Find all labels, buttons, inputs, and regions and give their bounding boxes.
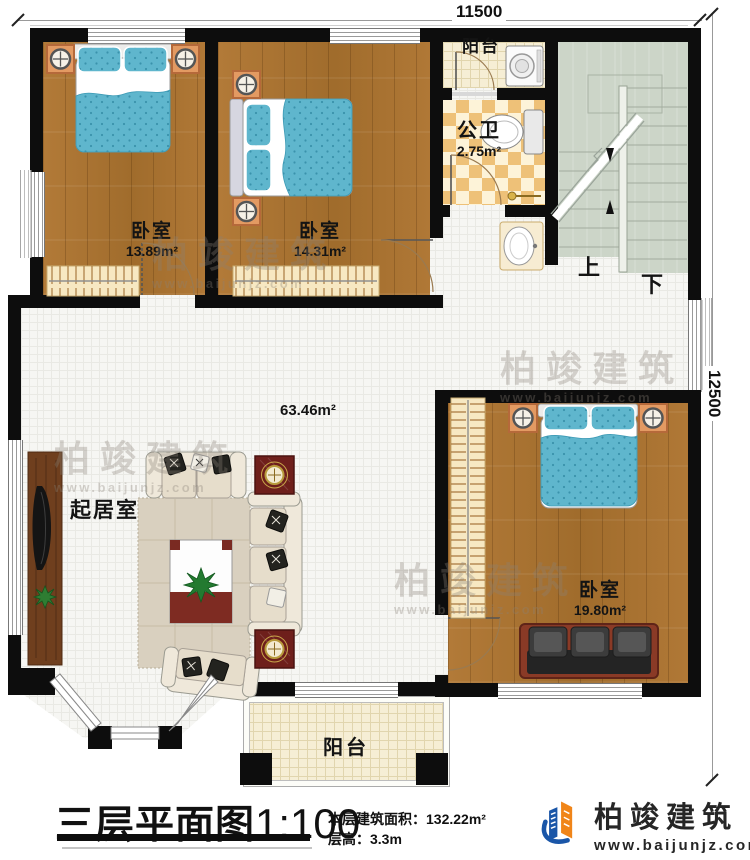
wall [398,682,448,696]
logo-url: www.baijunjz.com [594,837,750,854]
drawing-title: 三层平面图1:100 [55,794,360,850]
window [498,683,642,699]
balcony-pillar [240,753,272,785]
living-tile-floor-edge [21,308,43,683]
stair-floor-right [620,42,688,273]
wall [8,295,140,308]
wall [195,295,443,308]
room-name: 卧室 [131,221,173,242]
wall [433,88,452,100]
room-name: 公卫 [457,120,501,142]
title-underline-thin [62,847,312,849]
floor-area-label: 本层建筑面积： [328,811,426,827]
bay-pillar [158,726,182,749]
floor-info: 本层建筑面积：132.22m² 层高：3.3m [328,809,486,850]
wall [688,390,701,697]
top-dimension-line [18,20,702,21]
top-dimension-value: 11500 [452,2,506,22]
bay-pillar [8,668,55,695]
floor-height-label: 层高： [328,831,370,847]
wall [545,28,558,265]
room-name: 卧室 [579,580,621,601]
wall [8,308,21,440]
window [88,28,185,44]
window [8,440,23,635]
room-area: 14.31m² [276,243,364,259]
window-sill [20,170,32,258]
wall [205,42,218,295]
room-area: 2.75m² [440,143,518,159]
room-name: 卧室 [299,221,341,242]
bay-pillar [88,726,112,749]
wall [30,42,43,172]
wall [433,205,450,217]
floor-height-value: 3.3m [370,831,402,847]
wall [185,28,330,42]
bathroom-label: 公卫 2.75m² [440,120,518,159]
stairs-down-label: 下 [641,272,663,297]
wall [642,683,701,697]
bedroom2-label: 卧室 14.31m² [276,221,364,259]
bay-pillar [205,670,250,696]
floor-plan-canvas: 卧室 13.89m² 卧室 14.31m² 卧室 19.80m² 公卫 2.75… [0,0,750,860]
living-room-label: 起居室 [70,499,139,523]
balcony-bottom-label: 阳台 [310,737,382,760]
wall [505,205,545,217]
living-room-area: 63.46m² [280,402,336,419]
wall [435,390,701,403]
bedroom3-floor [448,403,688,683]
wall [435,403,448,615]
window [330,28,420,44]
title-underline [57,834,310,841]
room-area: 19.80m² [556,602,644,618]
logo-name: 柏竣建筑 [594,794,750,836]
floor-area-line: 本层建筑面积：132.22m² [328,809,486,829]
floor-height-line: 层高：3.3m [328,829,486,849]
wall [30,28,88,42]
floor-area-value: 132.22m² [426,811,486,827]
bedroom1-label: 卧室 13.89m² [108,221,196,259]
stairs-up-label: 上 [578,255,600,280]
company-logo: 柏竣建筑 www.baijunjz.com [538,794,750,854]
right-dimension-value: 12500 [704,366,724,421]
wall [688,42,701,300]
logo-text: 柏竣建筑 www.baijunjz.com [594,794,750,854]
room-area: 13.89m² [108,243,196,259]
wall [497,88,545,100]
balcony-top-label: 阳台 [448,37,514,57]
top-sill-line [30,25,688,26]
stair-floor-left [558,42,620,257]
balcony-pillar [416,753,448,785]
logo-icon [538,794,586,846]
sliding-door [295,682,398,698]
bedroom3-label: 卧室 19.80m² [556,580,644,618]
window [30,172,45,257]
